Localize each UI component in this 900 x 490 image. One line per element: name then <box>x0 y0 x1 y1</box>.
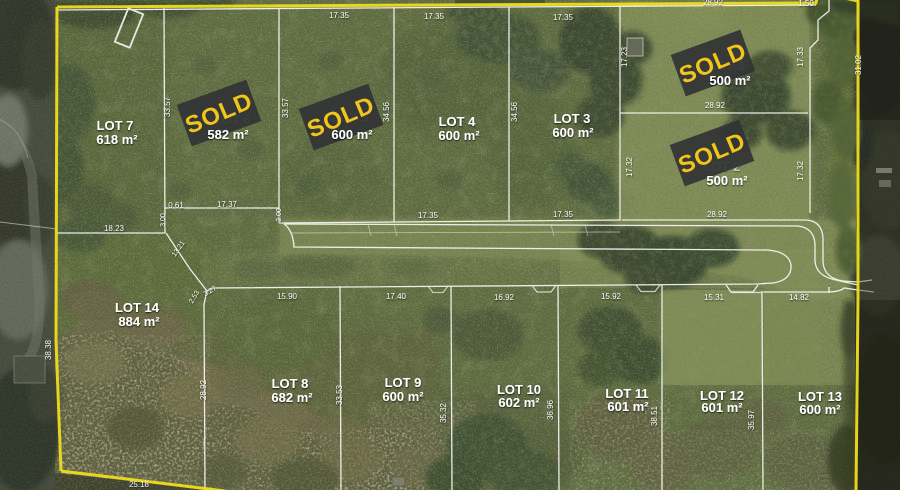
svg-text:0.61: 0.61 <box>168 201 184 210</box>
svg-text:600 m²: 600 m² <box>438 128 480 143</box>
svg-text:15.92: 15.92 <box>601 292 622 301</box>
svg-text:682 m²: 682 m² <box>271 390 313 405</box>
svg-text:38.51: 38.51 <box>650 405 659 426</box>
svg-text:601 m²: 601 m² <box>607 399 649 414</box>
svg-text:LOT 4: LOT 4 <box>439 114 477 129</box>
svg-text:17.37: 17.37 <box>217 200 238 209</box>
svg-text:600 m²: 600 m² <box>552 125 594 140</box>
svg-text:31.02: 31.02 <box>854 54 863 75</box>
svg-text:35.32: 35.32 <box>439 402 448 423</box>
svg-text:LOT 3: LOT 3 <box>554 111 591 126</box>
svg-text:17.33: 17.33 <box>796 46 805 67</box>
svg-text:17.35: 17.35 <box>553 210 574 219</box>
svg-text:17.35: 17.35 <box>418 211 439 220</box>
svg-text:33.57: 33.57 <box>163 96 172 117</box>
svg-text:35.97: 35.97 <box>747 409 756 430</box>
svg-text:25.18: 25.18 <box>129 480 150 489</box>
svg-text:601 m²: 601 m² <box>701 400 743 415</box>
svg-text:28.92: 28.92 <box>707 210 728 219</box>
svg-text:33.57: 33.57 <box>281 97 290 118</box>
svg-text:17.23: 17.23 <box>620 46 629 67</box>
svg-text:LOT 9: LOT 9 <box>385 375 422 390</box>
svg-text:600 m²: 600 m² <box>382 389 424 404</box>
svg-text:18.23: 18.23 <box>104 224 125 233</box>
svg-text:884 m²: 884 m² <box>118 314 160 329</box>
svg-text:17.35: 17.35 <box>424 12 445 21</box>
svg-text:17.35: 17.35 <box>553 13 574 22</box>
svg-text:34.56: 34.56 <box>510 101 519 122</box>
svg-text:16.92: 16.92 <box>494 293 515 302</box>
svg-text:14.82: 14.82 <box>789 293 810 302</box>
svg-text:2.00: 2.00 <box>276 208 283 222</box>
svg-text:500 m²: 500 m² <box>706 173 748 188</box>
svg-text:LOT 8: LOT 8 <box>272 376 309 391</box>
svg-text:17.35: 17.35 <box>329 11 350 20</box>
svg-text:34.56: 34.56 <box>382 101 391 122</box>
svg-text:17.40: 17.40 <box>386 292 407 301</box>
svg-text:33.53: 33.53 <box>335 384 344 405</box>
svg-text:LOT 7: LOT 7 <box>97 118 134 133</box>
svg-text:602 m²: 602 m² <box>498 395 540 410</box>
svg-text:36.96: 36.96 <box>546 399 555 420</box>
svg-text:500 m²: 500 m² <box>709 73 751 88</box>
svg-text:28.92: 28.92 <box>703 0 724 7</box>
svg-text:38.38: 38.38 <box>44 339 53 360</box>
svg-text:15.31: 15.31 <box>704 293 725 302</box>
svg-text:17.32: 17.32 <box>796 160 805 181</box>
svg-text:1.50: 1.50 <box>798 0 814 8</box>
svg-text:600 m²: 600 m² <box>799 402 841 417</box>
svg-text:15.90: 15.90 <box>277 292 298 301</box>
svg-text:600 m²: 600 m² <box>331 127 373 142</box>
svg-text:17.32: 17.32 <box>625 156 634 177</box>
svg-text:3.00: 3.00 <box>160 213 167 227</box>
svg-text:28.92: 28.92 <box>199 379 208 400</box>
svg-text:618 m²: 618 m² <box>96 132 138 147</box>
svg-text:LOT 14: LOT 14 <box>115 300 160 315</box>
svg-text:28.92: 28.92 <box>705 101 726 110</box>
svg-text:582 m²: 582 m² <box>207 127 249 142</box>
